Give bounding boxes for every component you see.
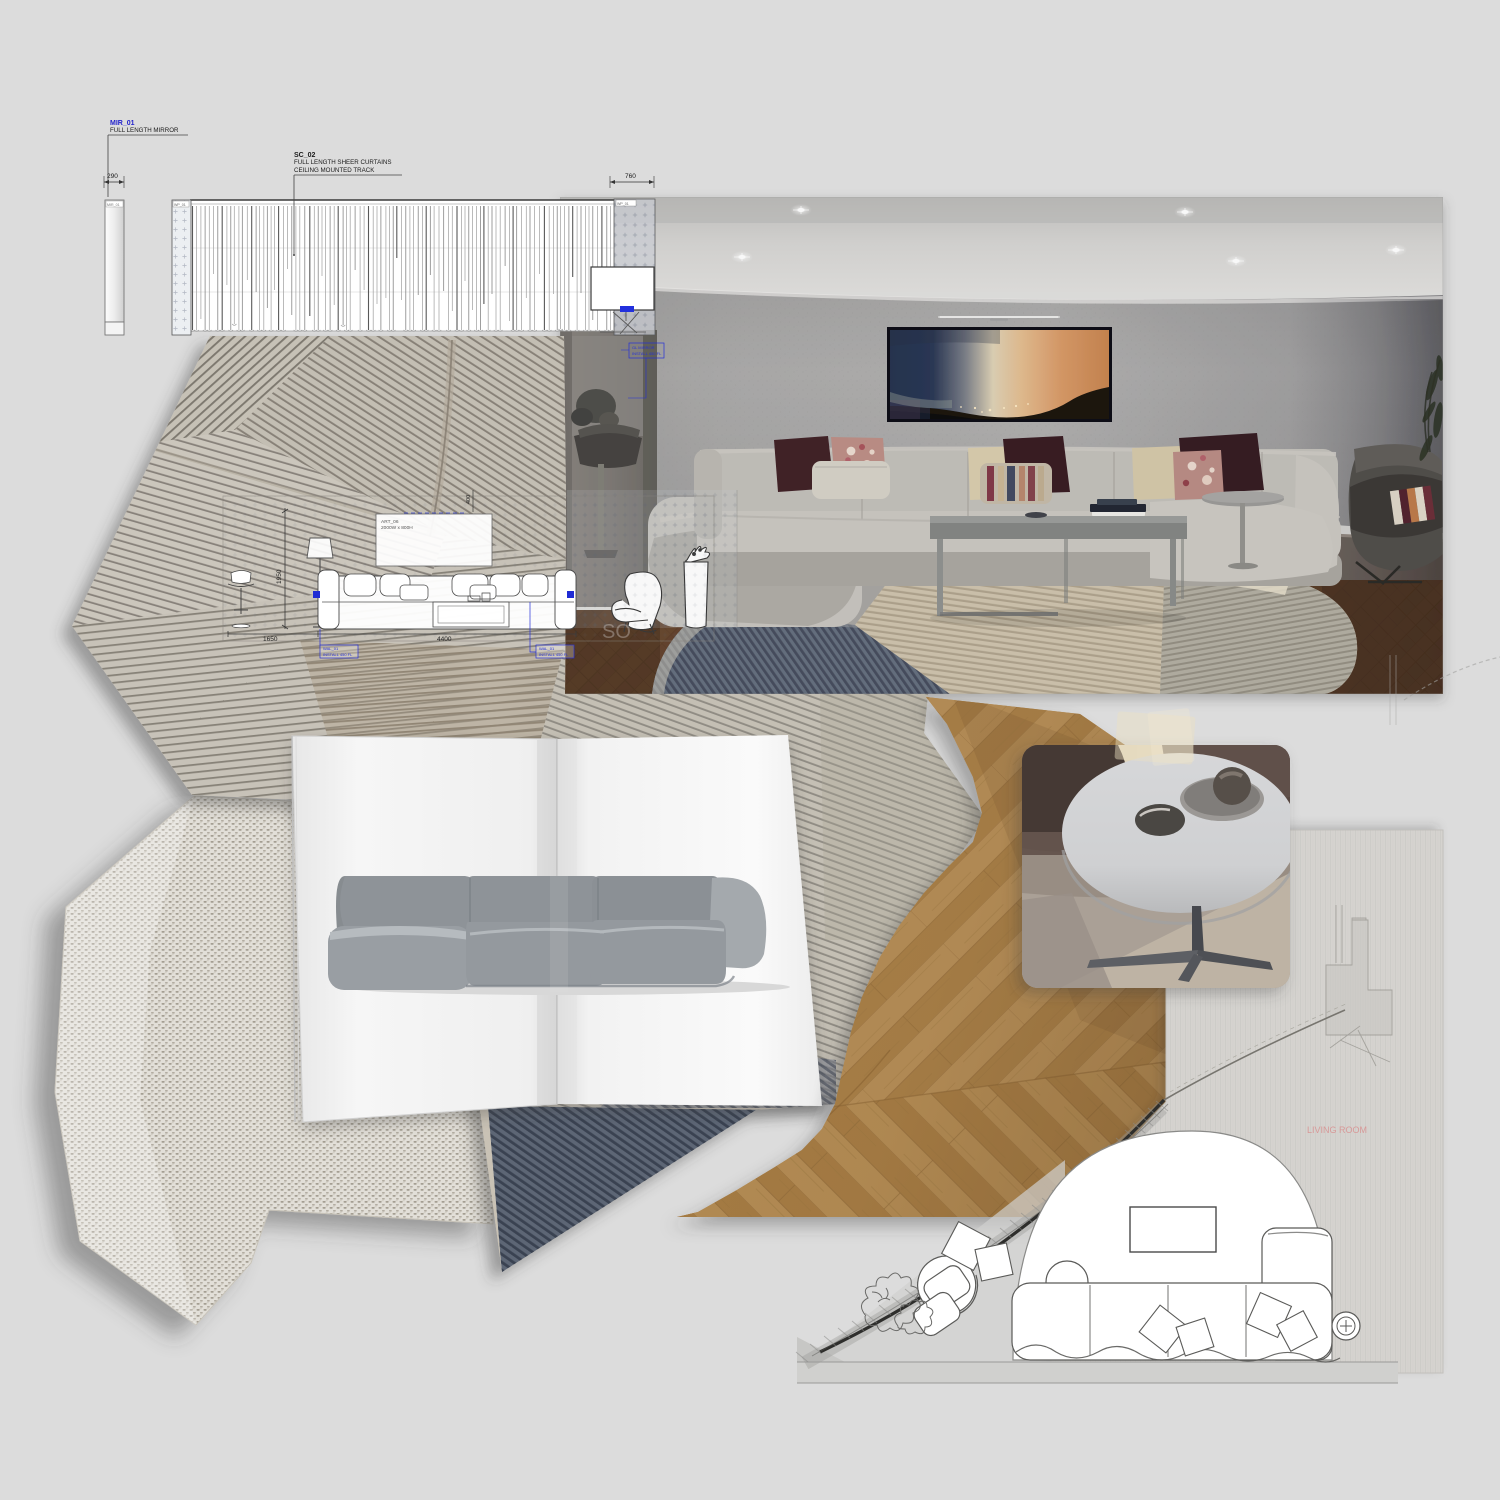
svg-text:WAL_01: WAL_01 xyxy=(539,646,555,651)
svg-text:400: 400 xyxy=(466,495,472,504)
svg-text:1950: 1950 xyxy=(276,569,283,584)
svg-text:FULL LENGTH MIRROR: FULL LENGTH MIRROR xyxy=(110,127,179,134)
svg-text:FULL LENGTH SHEER CURTAINS: FULL LENGTH SHEER CURTAINS xyxy=(294,159,392,166)
svg-text:1650: 1650 xyxy=(263,636,278,643)
svg-text:SC_02: SC_02 xyxy=(294,152,316,159)
svg-text:LIVING ROOM: LIVING ROOM xyxy=(1307,1125,1367,1135)
svg-text:760: 760 xyxy=(625,173,636,180)
svg-text:WP_01: WP_01 xyxy=(617,202,629,206)
svg-text:GL MIRROR: GL MIRROR xyxy=(632,345,655,350)
svg-text:WAL_01: WAL_01 xyxy=(323,646,339,651)
svg-text:2000W x 800H: 2000W x 800H xyxy=(381,525,413,531)
svg-text:ART_06: ART_06 xyxy=(381,519,399,525)
svg-text:WP_01: WP_01 xyxy=(174,203,186,207)
svg-text:MIR_01: MIR_01 xyxy=(110,120,135,127)
svg-text:INSTALL 450 FL: INSTALL 450 FL xyxy=(539,652,569,657)
svg-text:INSTALL 450 FL: INSTALL 450 FL xyxy=(323,652,353,657)
svg-text:CEILING MOUNTED TRACK: CEILING MOUNTED TRACK xyxy=(294,167,375,174)
svg-text:4400: 4400 xyxy=(437,636,452,643)
svg-text:MIR_01: MIR_01 xyxy=(107,203,120,207)
svg-text:290: 290 xyxy=(107,173,118,180)
svg-text:INSTALL 450 FL: INSTALL 450 FL xyxy=(632,351,662,356)
